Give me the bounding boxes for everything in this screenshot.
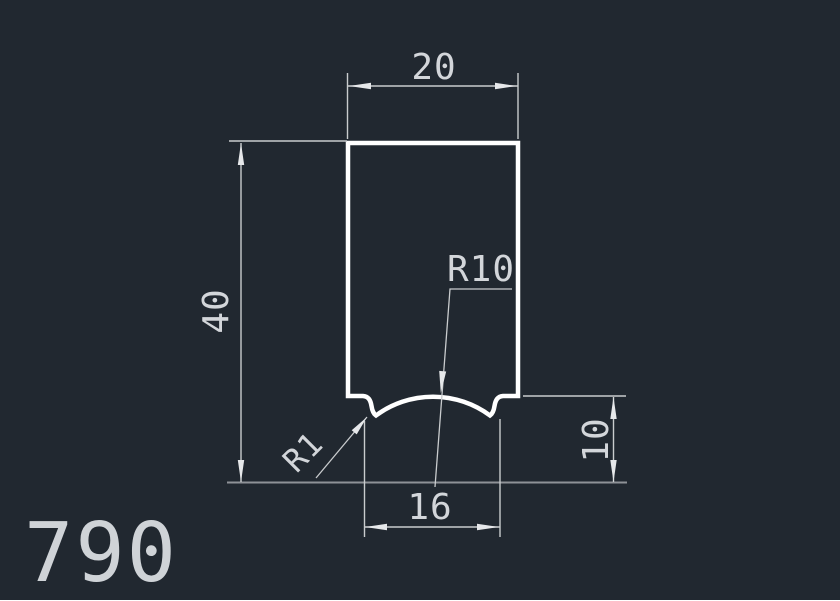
arrowhead-left — [365, 524, 387, 530]
arrowhead-left — [349, 83, 371, 89]
dimension-overall-height — [229, 141, 347, 482]
dim-overall-height-label: 40 — [199, 288, 235, 333]
arrowhead-right — [495, 83, 517, 89]
arrowhead-bottom — [610, 460, 616, 482]
arrowhead-top — [610, 397, 616, 419]
arrowhead-bottom — [238, 460, 244, 482]
groove-radius-label: R10 — [447, 252, 515, 288]
cad-drawing-canvas: 20 40 R10 R1 16 10 790 — [0, 0, 840, 600]
dim-top-width-label: 20 — [411, 50, 456, 86]
arrowhead-right — [477, 524, 499, 530]
dim-shoulder-height-label: 10 — [579, 417, 615, 462]
dim-groove-width-label: 16 — [407, 490, 452, 526]
arrowhead-top — [238, 143, 244, 165]
part-number-label: 790 — [24, 513, 178, 595]
